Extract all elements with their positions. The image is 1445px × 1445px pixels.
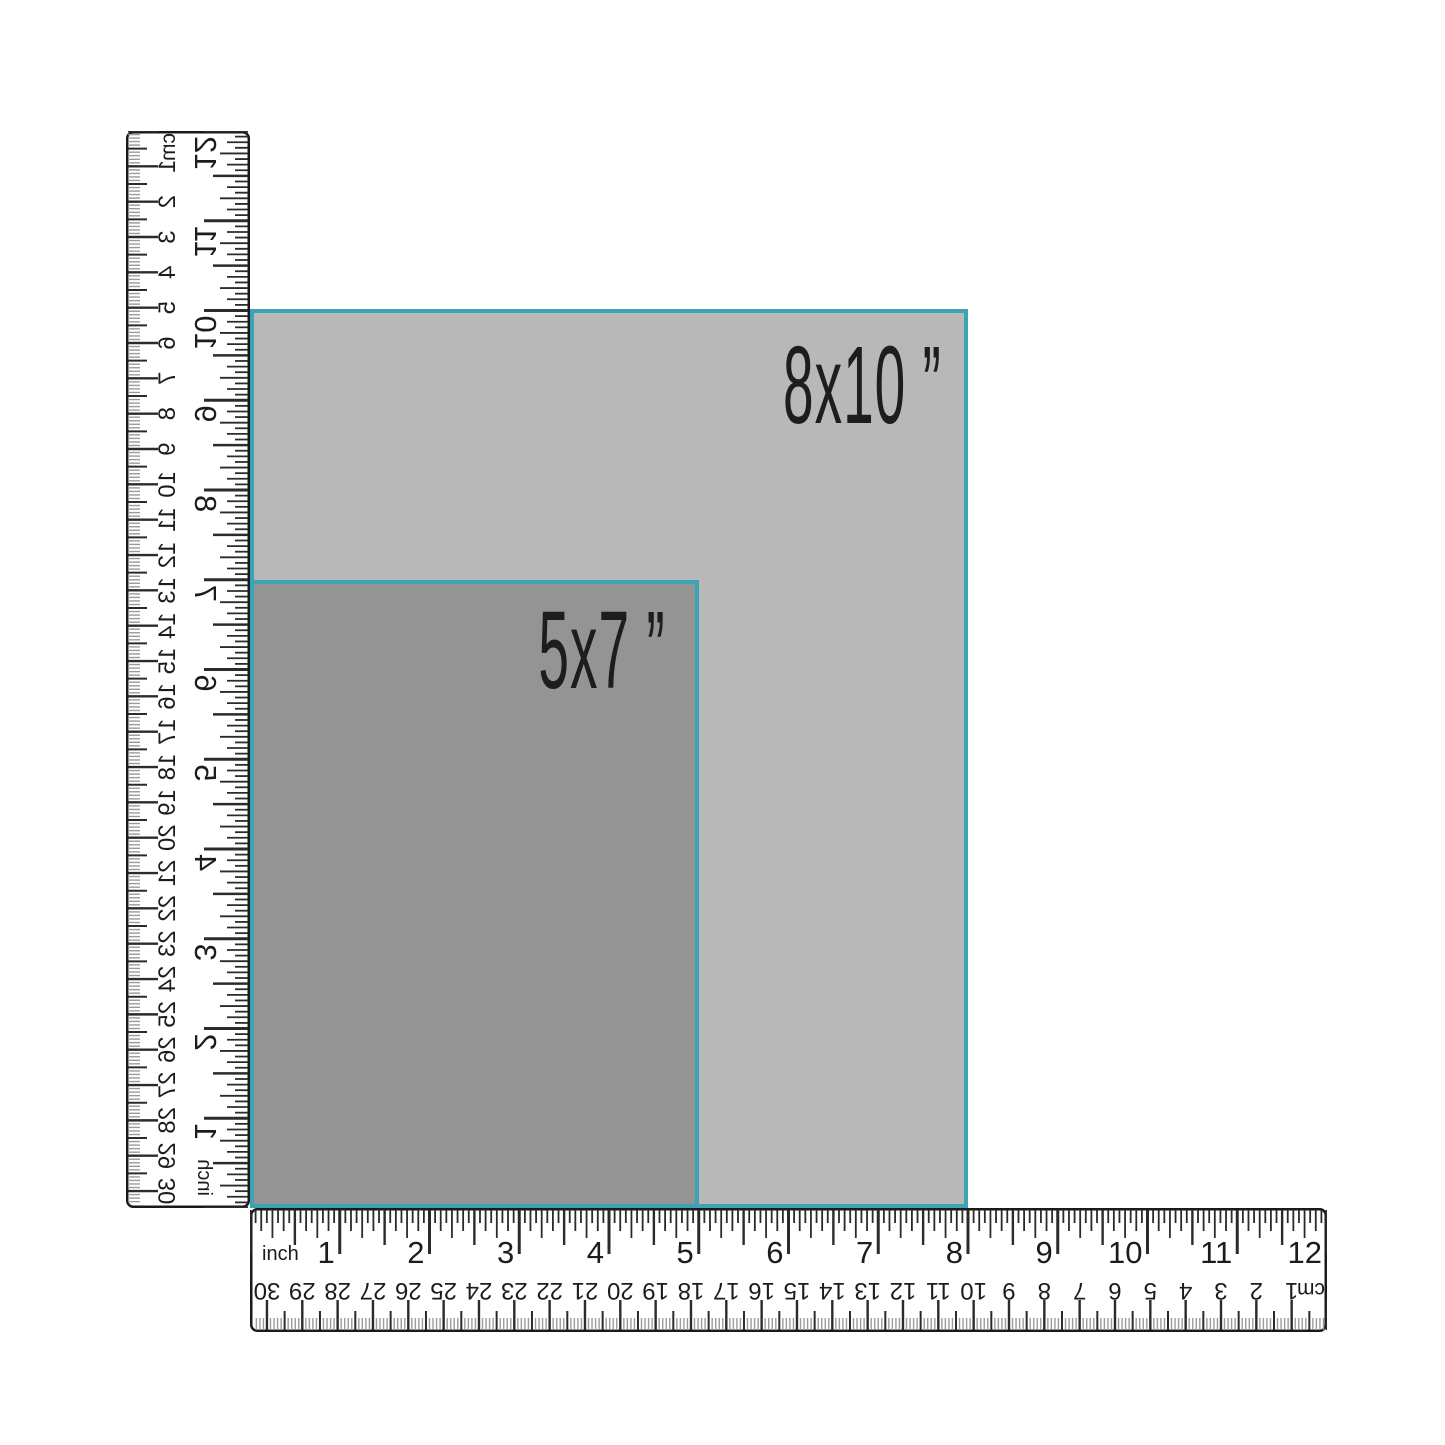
cm-number: 18: [678, 1277, 705, 1304]
cm-number: 18: [154, 754, 181, 781]
horizontal-ruler-scale: 123456789101112inch123456789101112131415…: [250, 1208, 1327, 1332]
cm-number: 20: [154, 824, 181, 851]
cm-number: 7: [1073, 1277, 1086, 1304]
cm-number: 4: [154, 266, 181, 279]
cm-number: 22: [536, 1277, 563, 1304]
cm-number: 8: [154, 407, 181, 420]
cm-number: 16: [154, 683, 181, 710]
inch-unit-label: inch: [193, 1159, 215, 1196]
vertical-ruler-scale: 123456789101112inch123456789101112131415…: [126, 131, 250, 1208]
inch-number: 11: [188, 226, 223, 258]
cm-number: 9: [1002, 1277, 1015, 1304]
vertical-ruler: 123456789101112inch123456789101112131415…: [126, 131, 250, 1208]
cm-number: 1: [154, 160, 181, 173]
inch-number: 8: [946, 1235, 963, 1270]
cm-number: 3: [1214, 1277, 1227, 1304]
inch-number: 9: [188, 405, 223, 422]
cm-number: 17: [154, 718, 181, 745]
cm-number: 30: [254, 1277, 281, 1304]
cm-unit-label: cm: [157, 133, 180, 161]
cm-number: 26: [395, 1277, 422, 1304]
size-label-5x7: 5x7 ”: [532, 595, 672, 707]
inch-unit-label: inch: [262, 1243, 299, 1265]
cm-number: 11: [926, 1277, 951, 1304]
inch-number: 10: [188, 316, 223, 350]
cm-number: 5: [1144, 1277, 1157, 1304]
cm-number: 21: [572, 1277, 599, 1304]
cm-number: 25: [154, 1001, 181, 1028]
inch-number: 11: [1200, 1235, 1232, 1270]
cm-number: 13: [854, 1277, 881, 1304]
cm-number: 29: [154, 1142, 181, 1169]
cm-number: 5: [154, 301, 181, 314]
cm-number: 24: [466, 1277, 493, 1304]
cm-number: 29: [289, 1277, 316, 1304]
cm-number: 19: [154, 789, 181, 816]
cm-number: 7: [154, 372, 181, 385]
inch-number: 10: [1108, 1235, 1142, 1270]
inch-number: 6: [766, 1235, 783, 1270]
inch-number: 7: [856, 1235, 873, 1270]
inch-number: 2: [407, 1235, 424, 1270]
cm-number: 15: [154, 648, 181, 675]
inch-number: 3: [497, 1235, 514, 1270]
cm-number: 24: [154, 966, 181, 993]
size-box-5x7: 5x7 ”: [250, 580, 699, 1208]
size-comparison-diagram: 8x10 ” 5x7 ” 123456789101112inch12345678…: [0, 0, 1445, 1445]
cm-number: 3: [154, 230, 181, 243]
cm-number: 20: [607, 1277, 634, 1304]
cm-number: 8: [1038, 1277, 1051, 1304]
cm-number: 28: [324, 1277, 351, 1304]
cm-number: 27: [360, 1277, 387, 1304]
cm-number: 11: [154, 507, 181, 532]
inch-number: 1: [318, 1235, 335, 1270]
cm-number: 30: [154, 1178, 181, 1205]
inch-number: 8: [188, 495, 223, 512]
cm-number: 2: [154, 195, 181, 208]
cm-unit-label: cm: [1297, 1278, 1325, 1301]
cm-number: 14: [819, 1277, 846, 1304]
inch-number: 7: [188, 585, 223, 602]
inch-number: 6: [188, 675, 223, 692]
cm-number: 23: [154, 930, 181, 957]
cm-number: 12: [154, 542, 181, 569]
inch-number: 4: [188, 854, 223, 871]
cm-number: 23: [501, 1277, 528, 1304]
cm-number: 13: [154, 577, 181, 604]
inch-number: 12: [1288, 1235, 1322, 1270]
cm-number: 10: [960, 1277, 987, 1304]
inch-number: 2: [188, 1034, 223, 1051]
inch-number: 4: [587, 1235, 604, 1270]
inch-number: 12: [188, 136, 223, 170]
cm-number: 6: [1108, 1277, 1121, 1304]
cm-number: 27: [154, 1072, 181, 1099]
inch-number: 3: [188, 944, 223, 961]
cm-number: 10: [154, 471, 181, 498]
horizontal-ruler: 123456789101112inch123456789101112131415…: [250, 1208, 1327, 1332]
cm-number: 25: [430, 1277, 457, 1304]
cm-number: 22: [154, 895, 181, 922]
cm-number: 1: [1285, 1277, 1298, 1304]
cm-number: 26: [154, 1036, 181, 1063]
cm-number: 21: [154, 860, 181, 887]
cm-number: 4: [1179, 1277, 1192, 1304]
cm-number: 14: [154, 612, 181, 639]
cm-number: 16: [748, 1277, 775, 1304]
inch-number: 9: [1036, 1235, 1053, 1270]
cm-number: 6: [154, 336, 181, 349]
cm-number: 15: [784, 1277, 811, 1304]
cm-number: 28: [154, 1107, 181, 1134]
inch-number: 1: [188, 1123, 223, 1140]
size-label-8x10: 8x10 ”: [783, 330, 923, 442]
inch-number: 5: [188, 764, 223, 781]
inch-number: 5: [677, 1235, 694, 1270]
cm-number: 12: [890, 1277, 917, 1304]
cm-number: 9: [154, 442, 181, 455]
cm-number: 17: [713, 1277, 740, 1304]
cm-number: 2: [1250, 1277, 1263, 1304]
cm-number: 19: [642, 1277, 669, 1304]
